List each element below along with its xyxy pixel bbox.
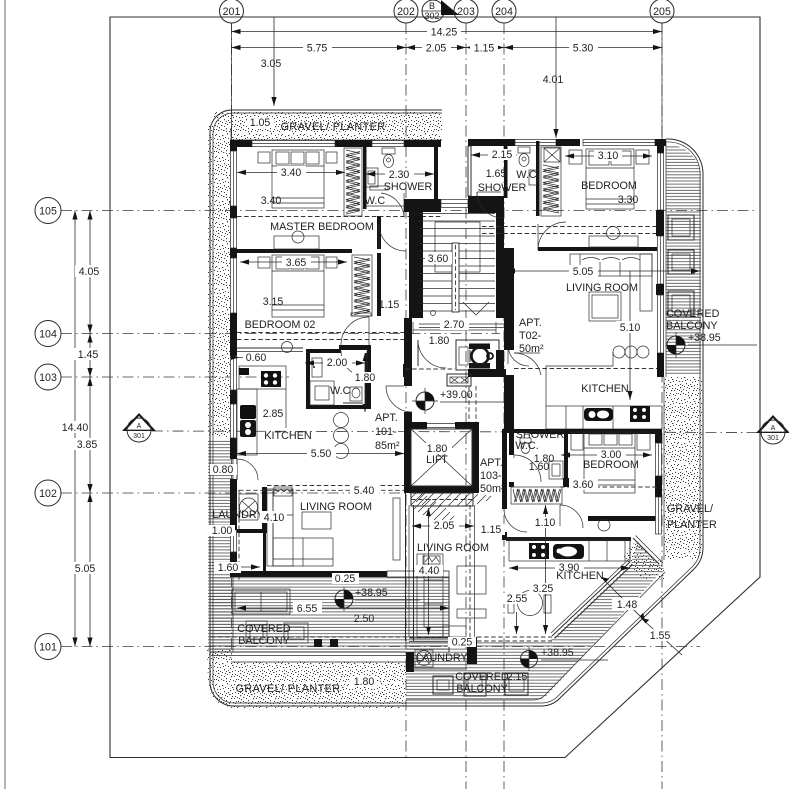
svg-text:1.65: 1.65 [486, 168, 507, 180]
svg-text:5.50: 5.50 [311, 448, 332, 460]
svg-text:4.10: 4.10 [264, 512, 285, 524]
svg-text:LIFT: LIFT [426, 454, 448, 466]
svg-text:0.60: 0.60 [246, 352, 267, 364]
svg-text:3.30: 3.30 [618, 194, 639, 206]
svg-text:1.48: 1.48 [617, 599, 638, 611]
svg-text:KITCHEN: KITCHEN [581, 383, 628, 395]
svg-text:BEDROOM 02: BEDROOM 02 [245, 319, 316, 331]
svg-text:1.55: 1.55 [650, 630, 671, 642]
svg-text:14.25: 14.25 [431, 27, 458, 39]
svg-text:+38.95: +38.95 [355, 587, 388, 599]
svg-text:101-: 101- [375, 426, 397, 438]
svg-text:W.C: W.C [330, 385, 351, 397]
svg-text:3.10: 3.10 [598, 150, 619, 162]
svg-text:202: 202 [397, 6, 415, 18]
svg-text:1.10: 1.10 [535, 517, 556, 529]
svg-text:1.60: 1.60 [218, 562, 239, 574]
svg-text:14.40: 14.40 [62, 422, 89, 434]
svg-text:205: 205 [653, 6, 671, 18]
svg-text:2.15: 2.15 [507, 671, 528, 683]
svg-text:1.80: 1.80 [355, 372, 376, 384]
svg-text:+39.00: +39.00 [440, 389, 473, 401]
svg-text:2.55: 2.55 [507, 593, 528, 605]
svg-text:LAUNDRY: LAUNDRY [416, 652, 467, 664]
svg-text:3.65: 3.65 [286, 257, 307, 269]
svg-text:1.15: 1.15 [474, 43, 495, 55]
svg-text:50m²: 50m² [519, 343, 544, 355]
svg-text:0.80: 0.80 [213, 464, 234, 476]
svg-text:2.70: 2.70 [444, 319, 465, 331]
svg-text:LIVING ROOM: LIVING ROOM [417, 542, 489, 554]
svg-text:204: 204 [495, 6, 513, 18]
svg-text:2.05: 2.05 [426, 43, 447, 55]
svg-text:5.05: 5.05 [75, 563, 96, 575]
svg-text:+38.95: +38.95 [688, 332, 721, 344]
svg-text:102: 102 [39, 488, 57, 500]
svg-text:104: 104 [39, 329, 57, 341]
svg-text:5.10: 5.10 [620, 322, 641, 334]
svg-text:MASTER BEDROOM: MASTER BEDROOM [270, 221, 374, 233]
svg-text:3.40: 3.40 [281, 167, 302, 179]
svg-text:BEDROOM: BEDROOM [581, 180, 637, 192]
svg-text:201: 201 [223, 6, 241, 18]
svg-text:T02-: T02- [519, 330, 542, 342]
svg-text:W.C.: W.C. [516, 169, 539, 181]
svg-text:6.55: 6.55 [297, 603, 318, 615]
svg-text:0.25: 0.25 [452, 637, 473, 649]
svg-text:1.80: 1.80 [354, 676, 375, 688]
svg-text:APT.: APT. [519, 317, 542, 329]
svg-text:1.15: 1.15 [481, 524, 502, 536]
svg-text:1.00: 1.00 [212, 525, 233, 537]
svg-text:1.80: 1.80 [429, 335, 450, 347]
svg-text:KITCHEN: KITCHEN [264, 430, 311, 442]
svg-text:1.05: 1.05 [250, 117, 271, 129]
svg-text:BALCONY: BALCONY [238, 635, 290, 647]
svg-text:103-: 103- [480, 470, 502, 482]
svg-text:4.05: 4.05 [79, 266, 100, 278]
svg-text:2.05: 2.05 [434, 520, 455, 532]
svg-text:2.85: 2.85 [263, 408, 284, 420]
svg-text:2.15: 2.15 [492, 149, 513, 161]
svg-text:A: A [771, 425, 776, 432]
svg-text:W.C.: W.C. [515, 440, 538, 452]
svg-text:4.40: 4.40 [419, 565, 440, 577]
svg-text:101: 101 [39, 642, 57, 654]
svg-text:GRAVEL/ PLANTER: GRAVEL/ PLANTER [281, 121, 386, 133]
svg-text:4.01: 4.01 [543, 74, 564, 86]
svg-text:3.85: 3.85 [77, 439, 98, 451]
svg-text:COVERED: COVERED [237, 623, 291, 635]
svg-text:APT.: APT. [480, 457, 503, 469]
svg-text:3.40: 3.40 [261, 195, 282, 207]
svg-text:COVERED: COVERED [455, 671, 509, 683]
svg-text:SHOWER: SHOWER [384, 181, 433, 193]
svg-text:LIVING ROOM: LIVING ROOM [300, 501, 372, 513]
svg-text:0.25: 0.25 [335, 573, 356, 585]
svg-text:LAUNDRY: LAUNDRY [212, 509, 263, 521]
svg-text:1.60: 1.60 [529, 461, 550, 473]
svg-text:BALCONY: BALCONY [456, 683, 508, 695]
svg-text:301: 301 [133, 433, 145, 440]
svg-text:302: 302 [424, 11, 439, 21]
svg-text:5.75: 5.75 [307, 43, 328, 55]
svg-text:103: 103 [39, 372, 57, 384]
svg-text:203: 203 [457, 6, 475, 18]
svg-text:2.00: 2.00 [327, 357, 348, 369]
svg-text:GRAVEL/ PLANTER: GRAVEL/ PLANTER [236, 683, 341, 695]
svg-text:1.45: 1.45 [78, 349, 99, 361]
svg-text:BALCONY: BALCONY [666, 320, 718, 332]
svg-text:GRAVEL/: GRAVEL/ [667, 503, 713, 515]
svg-text:SHOWER: SHOWER [478, 182, 527, 194]
svg-text:2.50: 2.50 [354, 613, 375, 625]
svg-text:LIVING ROOM: LIVING ROOM [566, 282, 638, 294]
svg-text:5.30: 5.30 [573, 43, 594, 55]
svg-text:3.25: 3.25 [533, 583, 554, 595]
svg-text:2.30: 2.30 [389, 169, 410, 181]
svg-text:APT.: APT. [375, 412, 398, 424]
svg-text:3.15: 3.15 [263, 296, 284, 308]
svg-text:PLANTER: PLANTER [667, 519, 717, 531]
svg-text:COVERED: COVERED [666, 308, 720, 320]
svg-text:KITCHEN: KITCHEN [556, 570, 603, 582]
svg-text:85m²: 85m² [375, 440, 400, 452]
svg-text:3.60: 3.60 [573, 479, 594, 491]
svg-text:50m²: 50m² [480, 483, 505, 495]
svg-text:3.05: 3.05 [261, 58, 282, 70]
svg-text:301: 301 [767, 435, 779, 442]
svg-text:W.C: W.C [365, 195, 386, 207]
svg-text:+38.95: +38.95 [541, 647, 574, 659]
svg-text:1.15: 1.15 [379, 299, 400, 311]
svg-text:5.05: 5.05 [573, 266, 594, 278]
svg-text:B: B [429, 1, 435, 11]
svg-text:105: 105 [39, 206, 57, 218]
svg-text:5.40: 5.40 [354, 485, 375, 497]
svg-text:A: A [137, 423, 142, 430]
svg-text:3.60: 3.60 [428, 253, 449, 265]
svg-text:BEDROOM: BEDROOM [583, 459, 639, 471]
